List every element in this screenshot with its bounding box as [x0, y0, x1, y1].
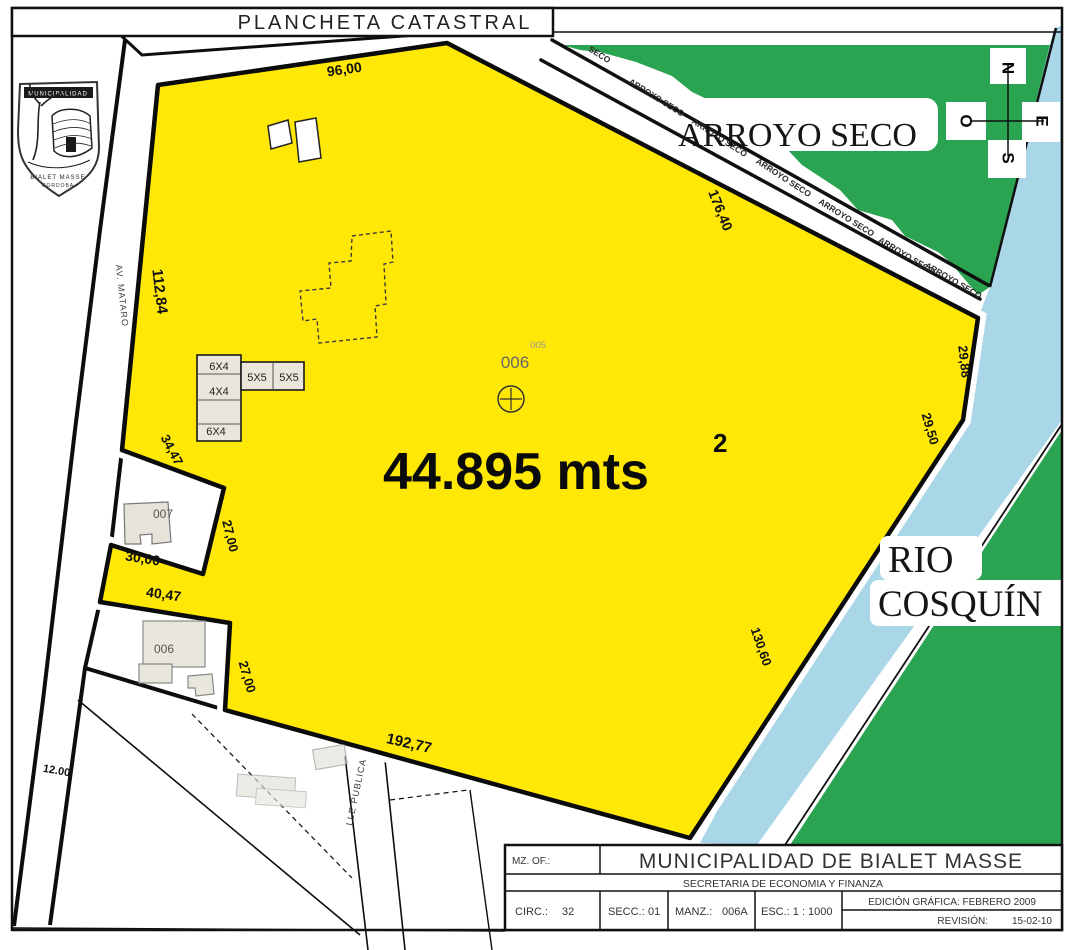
circ-label: CIRC.:	[515, 906, 548, 918]
compass-o: O	[957, 114, 976, 127]
area-exponent: 2	[713, 428, 727, 458]
room-label: 5X5	[247, 372, 267, 384]
manz-label: MANZ.:	[675, 906, 712, 918]
mz-label: MZ. OF.:	[512, 856, 550, 867]
parcel-line-3	[470, 790, 492, 950]
street-width-label: 12.00	[42, 763, 71, 780]
secc-value: 01	[648, 906, 660, 918]
parcel-007: 007	[124, 502, 173, 544]
municipality-title: MUNICIPALIDAD DE BIALET MASSE	[639, 850, 1023, 873]
calle-publica-label: LLE PUBLICA	[344, 758, 368, 827]
title-bar: PLANCHETA CATASTRAL	[12, 8, 553, 36]
parcel-007-number: 007	[153, 507, 173, 521]
arroyo-seco-label: ARROYO SECO	[678, 117, 917, 154]
building-faint-3	[313, 744, 348, 769]
calle-publica-east-line	[385, 760, 405, 950]
esc-label: ESC.: 1 :	[761, 906, 805, 918]
building-faint-2	[256, 788, 307, 807]
logo-name-text: BIALET MASSE	[30, 175, 85, 181]
parcel-006-small: 006	[139, 621, 214, 696]
compass-s: S	[999, 152, 1018, 163]
room-label: 6X4	[206, 426, 226, 438]
circ-value: 32	[562, 906, 574, 918]
room-label: 5X5	[279, 372, 299, 384]
neighbor-parcel-number: 005	[530, 340, 546, 351]
rio-label-line1: RIO	[888, 539, 953, 581]
secretary-title: SECRETARIA DE ECONOMIA Y FINANZA	[683, 878, 883, 890]
parcel-006-number: 006	[154, 642, 174, 656]
compass-e: E	[1033, 115, 1052, 126]
main-parcel-number: 006	[501, 353, 529, 372]
cadastral-map-page: SECO ARROYO SECO ARROYO SECO ARROYO SECO…	[0, 0, 1070, 950]
logo-sub-text: CORDOBA	[42, 183, 74, 189]
revision-value: 15-02-10	[1012, 916, 1052, 927]
esc-value: 1000	[808, 906, 832, 918]
manz-value: 006A	[722, 906, 748, 918]
building-small-2	[295, 118, 321, 162]
cadastral-map: SECO ARROYO SECO ARROYO SECO ARROYO SECO…	[0, 0, 1070, 950]
revision-label: REVISIÓN:	[937, 914, 988, 927]
hut-door	[66, 137, 76, 152]
logo-hut-icon	[52, 109, 92, 156]
compass-n: N	[999, 62, 1018, 74]
page-title: PLANCHETA CATASTRAL	[238, 12, 533, 34]
faint-buildings	[236, 744, 347, 807]
secc-label: SECC.:	[608, 906, 645, 918]
parcel-line-dashed-2	[390, 790, 468, 800]
building-006-shed	[188, 674, 214, 696]
room-label: 4X4	[209, 386, 229, 398]
area-label: 44.895 mts	[383, 443, 649, 501]
survey-point-icon	[498, 386, 524, 412]
title-block: MZ. OF.: MUNICIPALIDAD DE BIALET MASSE S…	[505, 845, 1062, 930]
building-006-annex	[139, 664, 172, 683]
municipal-logo: MUNICIPALIDAD BIALET MASSE CORDOBA	[18, 82, 99, 196]
room-label: 6X4	[209, 361, 229, 373]
building-small-1	[268, 120, 292, 149]
av-mataro-label: AV. MATARO	[114, 264, 130, 327]
rio-label-line2: COSQUÍN	[878, 583, 1042, 625]
edition-label: EDICIÓN GRÁFICA: FEBRERO 2009	[868, 895, 1036, 908]
